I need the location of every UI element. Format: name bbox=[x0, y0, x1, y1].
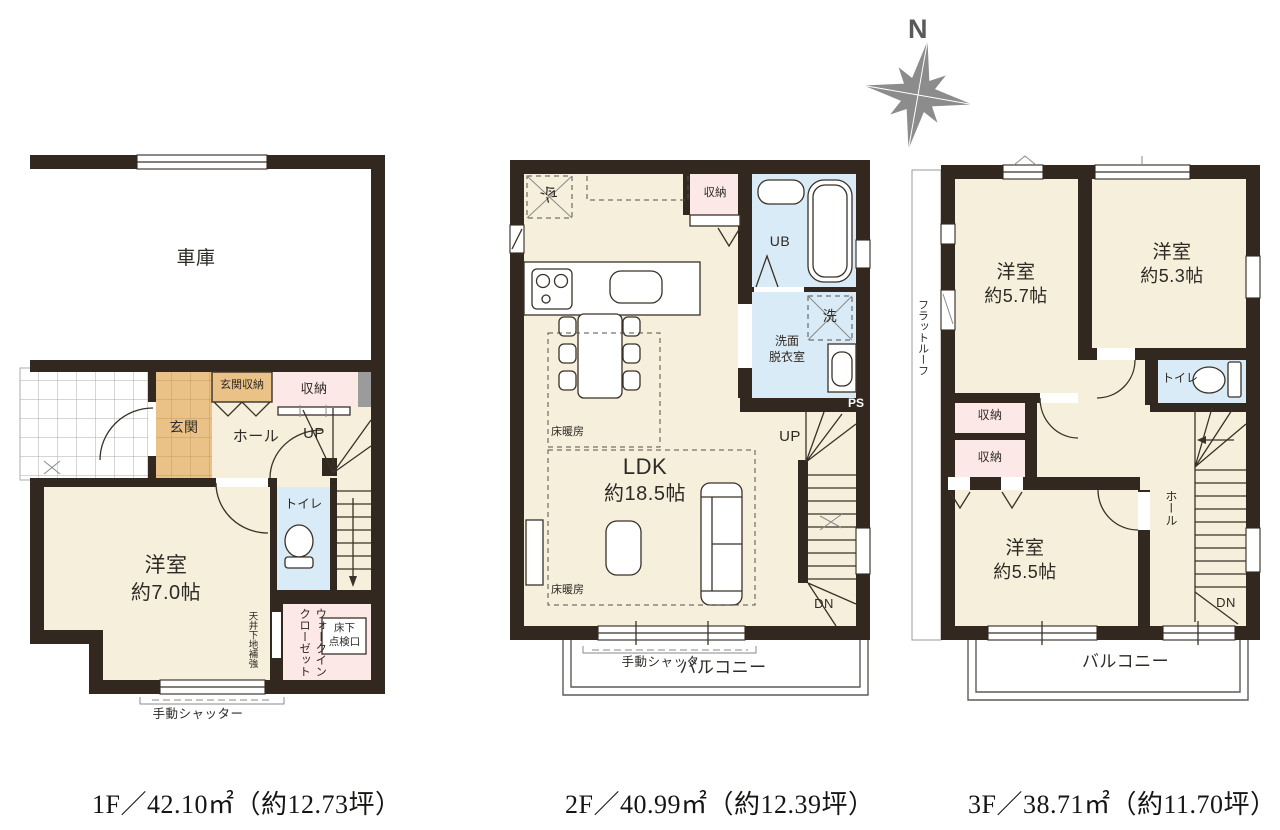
unit-bath-label: UB bbox=[760, 232, 800, 250]
western-room-1f-name: 洋室 bbox=[66, 552, 266, 580]
storage-3f-b-label: 収納 bbox=[955, 450, 1025, 466]
floor-heating-label-2: 床暖房 bbox=[551, 583, 584, 598]
balcony-3f-label: バルコニー bbox=[1038, 651, 1213, 673]
compass-north-label: N bbox=[900, 12, 936, 48]
floor-hatch-label: 床下 点検口 bbox=[323, 621, 366, 649]
ceiling-reinforcement-note: 天井下地補強 bbox=[245, 598, 258, 680]
toilet-1f-label: トイレ bbox=[278, 496, 329, 513]
western-room-b-label: 洋室 約5.3帖 bbox=[1092, 240, 1252, 289]
stairs-down-2f-label: DN bbox=[806, 595, 842, 612]
balcony-2f-label: バルコニー bbox=[638, 657, 808, 679]
flat-roof-label: フラットルーフ bbox=[915, 282, 930, 392]
garage-label: 車庫 bbox=[146, 246, 246, 271]
hall-1f-label: ホール bbox=[210, 427, 302, 447]
floorplan-sheet: N 車庫 玄関収納 収納 玄関 ホール UP トイレ 洋室 約7.0帖 ウォーク… bbox=[0, 0, 1280, 830]
stairs-up-2f-label: UP bbox=[772, 427, 808, 447]
western-room-1f-size: 約7.0帖 bbox=[66, 580, 266, 606]
floor1-caption: 1F／42.10㎡（約12.73坪） bbox=[92, 788, 401, 822]
ldk-label: LDK 約18.5帖 bbox=[565, 452, 725, 507]
floor2-caption: 2F／40.99㎡（約12.39坪） bbox=[565, 788, 874, 822]
flat-roof-area bbox=[912, 170, 941, 640]
kitchen-counter bbox=[524, 262, 700, 315]
entry-storage-label: 玄関収納 bbox=[213, 378, 271, 393]
toilet-3f-label: トイレ bbox=[1159, 371, 1201, 387]
dining-set bbox=[559, 314, 640, 398]
laundry-label: 洗 bbox=[818, 307, 842, 325]
western-room-a-label: 洋室 約5.7帖 bbox=[946, 260, 1086, 309]
floor1-shutter-mark bbox=[140, 697, 284, 704]
floor-heating-label-1: 床暖房 bbox=[551, 425, 584, 440]
hall-3f-label: ホール bbox=[1162, 480, 1178, 536]
entrance-label: 玄関 bbox=[156, 418, 212, 436]
washroom-label: 洗面 脱衣室 bbox=[755, 334, 819, 366]
floor3-caption: 3F／38.71㎡（約11.70坪） bbox=[968, 788, 1277, 822]
vanity bbox=[828, 344, 856, 392]
compass-rose bbox=[854, 31, 981, 158]
stairs-down-3f-label: DN bbox=[1206, 594, 1246, 611]
floor3-plan bbox=[912, 156, 1260, 700]
storage-1f-label: 収納 bbox=[276, 380, 352, 397]
floor1-toilet-fixture bbox=[285, 525, 313, 568]
stairs-up-1f-label: UP bbox=[294, 424, 334, 444]
pipe-space-label: PS bbox=[842, 396, 870, 412]
western-room-c-label: 洋室 約5.5帖 bbox=[945, 536, 1105, 585]
western-room-1f-label: 洋室 約7.0帖 bbox=[66, 552, 266, 606]
coffee-table bbox=[606, 521, 641, 575]
storage-3f-a-label: 収納 bbox=[955, 408, 1025, 424]
storage-2f-label: 収納 bbox=[690, 186, 740, 201]
tv-board bbox=[526, 520, 543, 585]
shutter-1f-label: 手動シャッター bbox=[122, 706, 274, 723]
